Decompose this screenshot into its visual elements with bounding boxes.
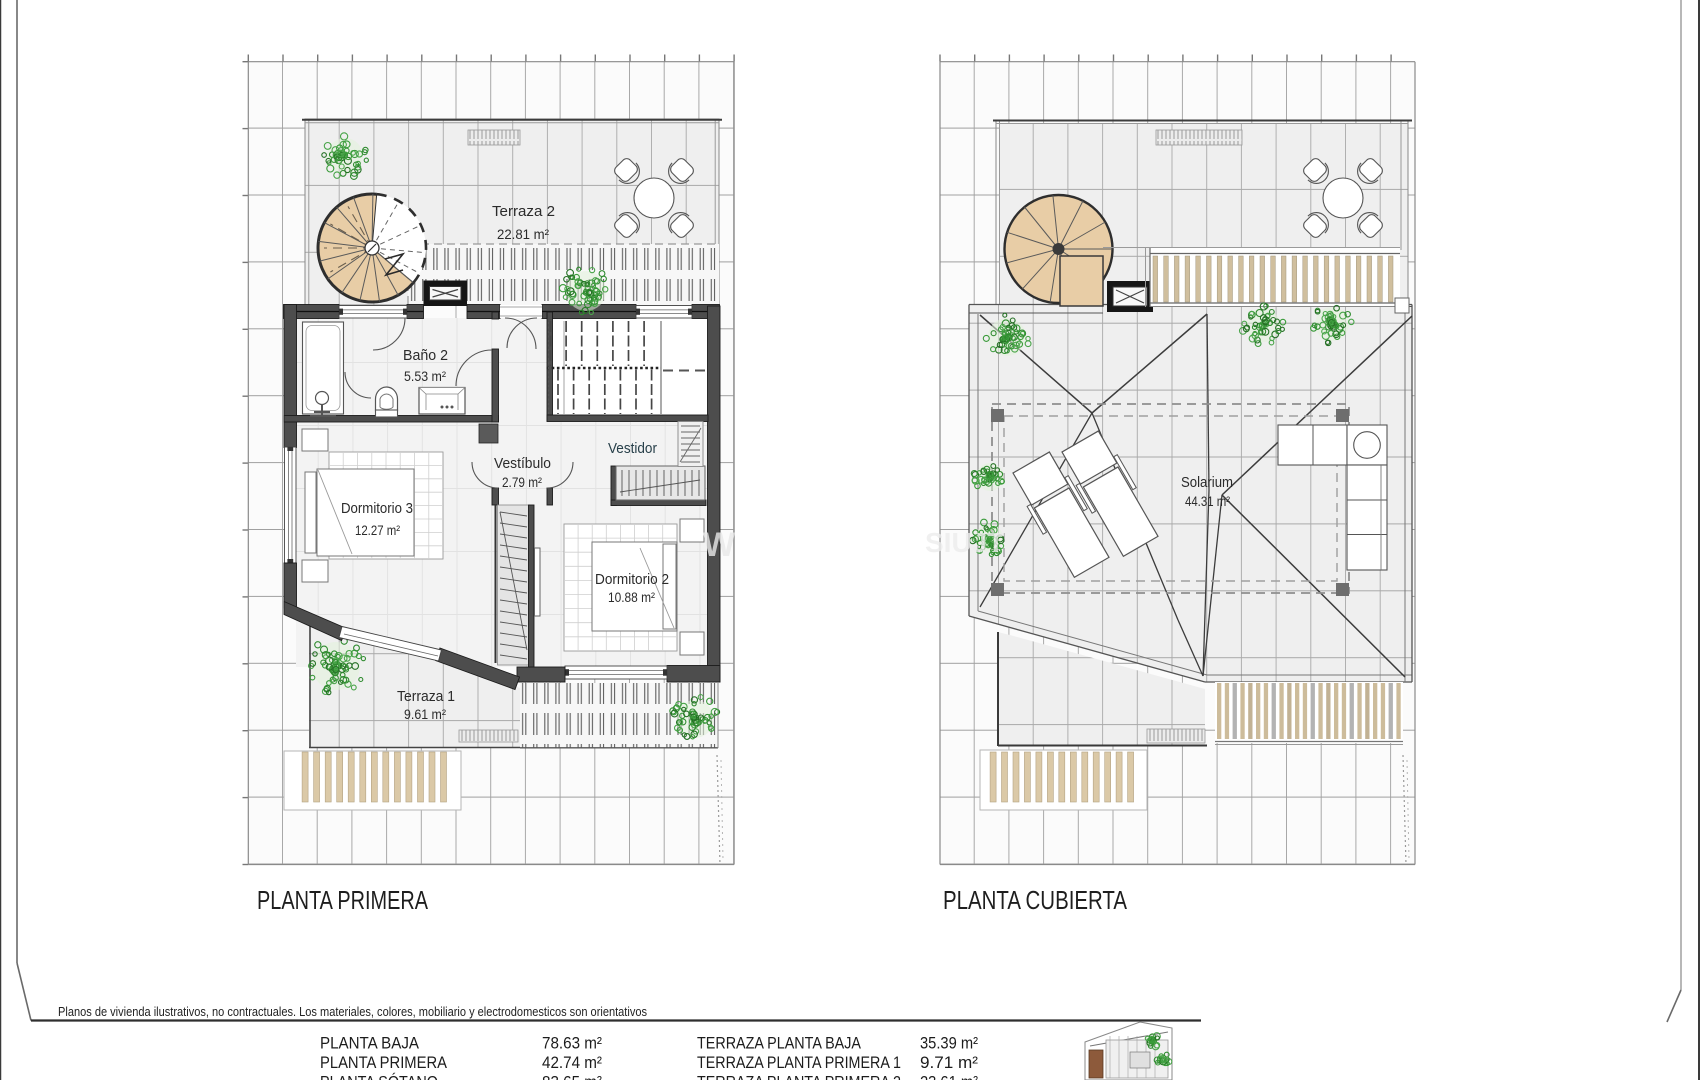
- svg-text:9.61 m²: 9.61 m²: [404, 707, 446, 722]
- svg-text:35.39 m²: 35.39 m²: [920, 1035, 978, 1053]
- svg-text:PLANTA SÓTANO: PLANTA SÓTANO: [320, 1073, 438, 1080]
- svg-text:PLANTA PRIMERA: PLANTA PRIMERA: [257, 887, 428, 915]
- svg-text:PLANTA PRIMERA: PLANTA PRIMERA: [320, 1054, 447, 1072]
- svg-text:22.81 m²: 22.81 m²: [497, 227, 549, 242]
- svg-text:23.61 m²: 23.61 m²: [920, 1074, 978, 1080]
- svg-text:TERRAZA PLANTA PRIMERA 1: TERRAZA PLANTA PRIMERA 1: [697, 1054, 901, 1072]
- svg-text:Terraza 1: Terraza 1: [397, 689, 455, 705]
- svg-text:Dormitorio 2: Dormitorio 2: [595, 572, 669, 588]
- svg-text:10.88 m²: 10.88 m²: [608, 590, 655, 605]
- svg-text:PLANTA BAJA: PLANTA BAJA: [320, 1035, 419, 1053]
- svg-text:Vestidor: Vestidor: [608, 441, 657, 457]
- svg-text:12.27 m²: 12.27 m²: [355, 523, 400, 538]
- svg-text:Solarium: Solarium: [1181, 475, 1233, 491]
- svg-text:78.63 m²: 78.63 m²: [542, 1035, 602, 1053]
- svg-text:Vestíbulo: Vestíbulo: [494, 456, 551, 472]
- svg-text:TERRAZA PLANTA BAJA: TERRAZA PLANTA BAJA: [697, 1035, 861, 1053]
- svg-text:83.65 m²: 83.65 m²: [542, 1074, 602, 1080]
- svg-text:PLANTA CUBIERTA: PLANTA CUBIERTA: [943, 887, 1127, 915]
- svg-text:W: W: [703, 526, 736, 564]
- svg-text:SIUJT: SIUJT: [925, 527, 1004, 558]
- svg-text:Planos de vivienda ilustrativo: Planos de vivienda ilustrativos, no cont…: [58, 1004, 647, 1019]
- svg-text:Terraza 2: Terraza 2: [492, 204, 555, 220]
- svg-text:9.71 m²: 9.71 m²: [920, 1054, 979, 1072]
- svg-text:Baño 2: Baño 2: [403, 348, 448, 364]
- svg-text:Dormitorio 3: Dormitorio 3: [341, 501, 413, 517]
- svg-text:5.53 m²: 5.53 m²: [404, 369, 446, 384]
- svg-text:42.74 m²: 42.74 m²: [542, 1054, 602, 1072]
- svg-text:2.79 m²: 2.79 m²: [502, 475, 542, 490]
- svg-text:44.31 m²: 44.31 m²: [1185, 494, 1230, 509]
- svg-text:TERRAZA PLANTA PRIMERA 2: TERRAZA PLANTA PRIMERA 2: [697, 1074, 901, 1080]
